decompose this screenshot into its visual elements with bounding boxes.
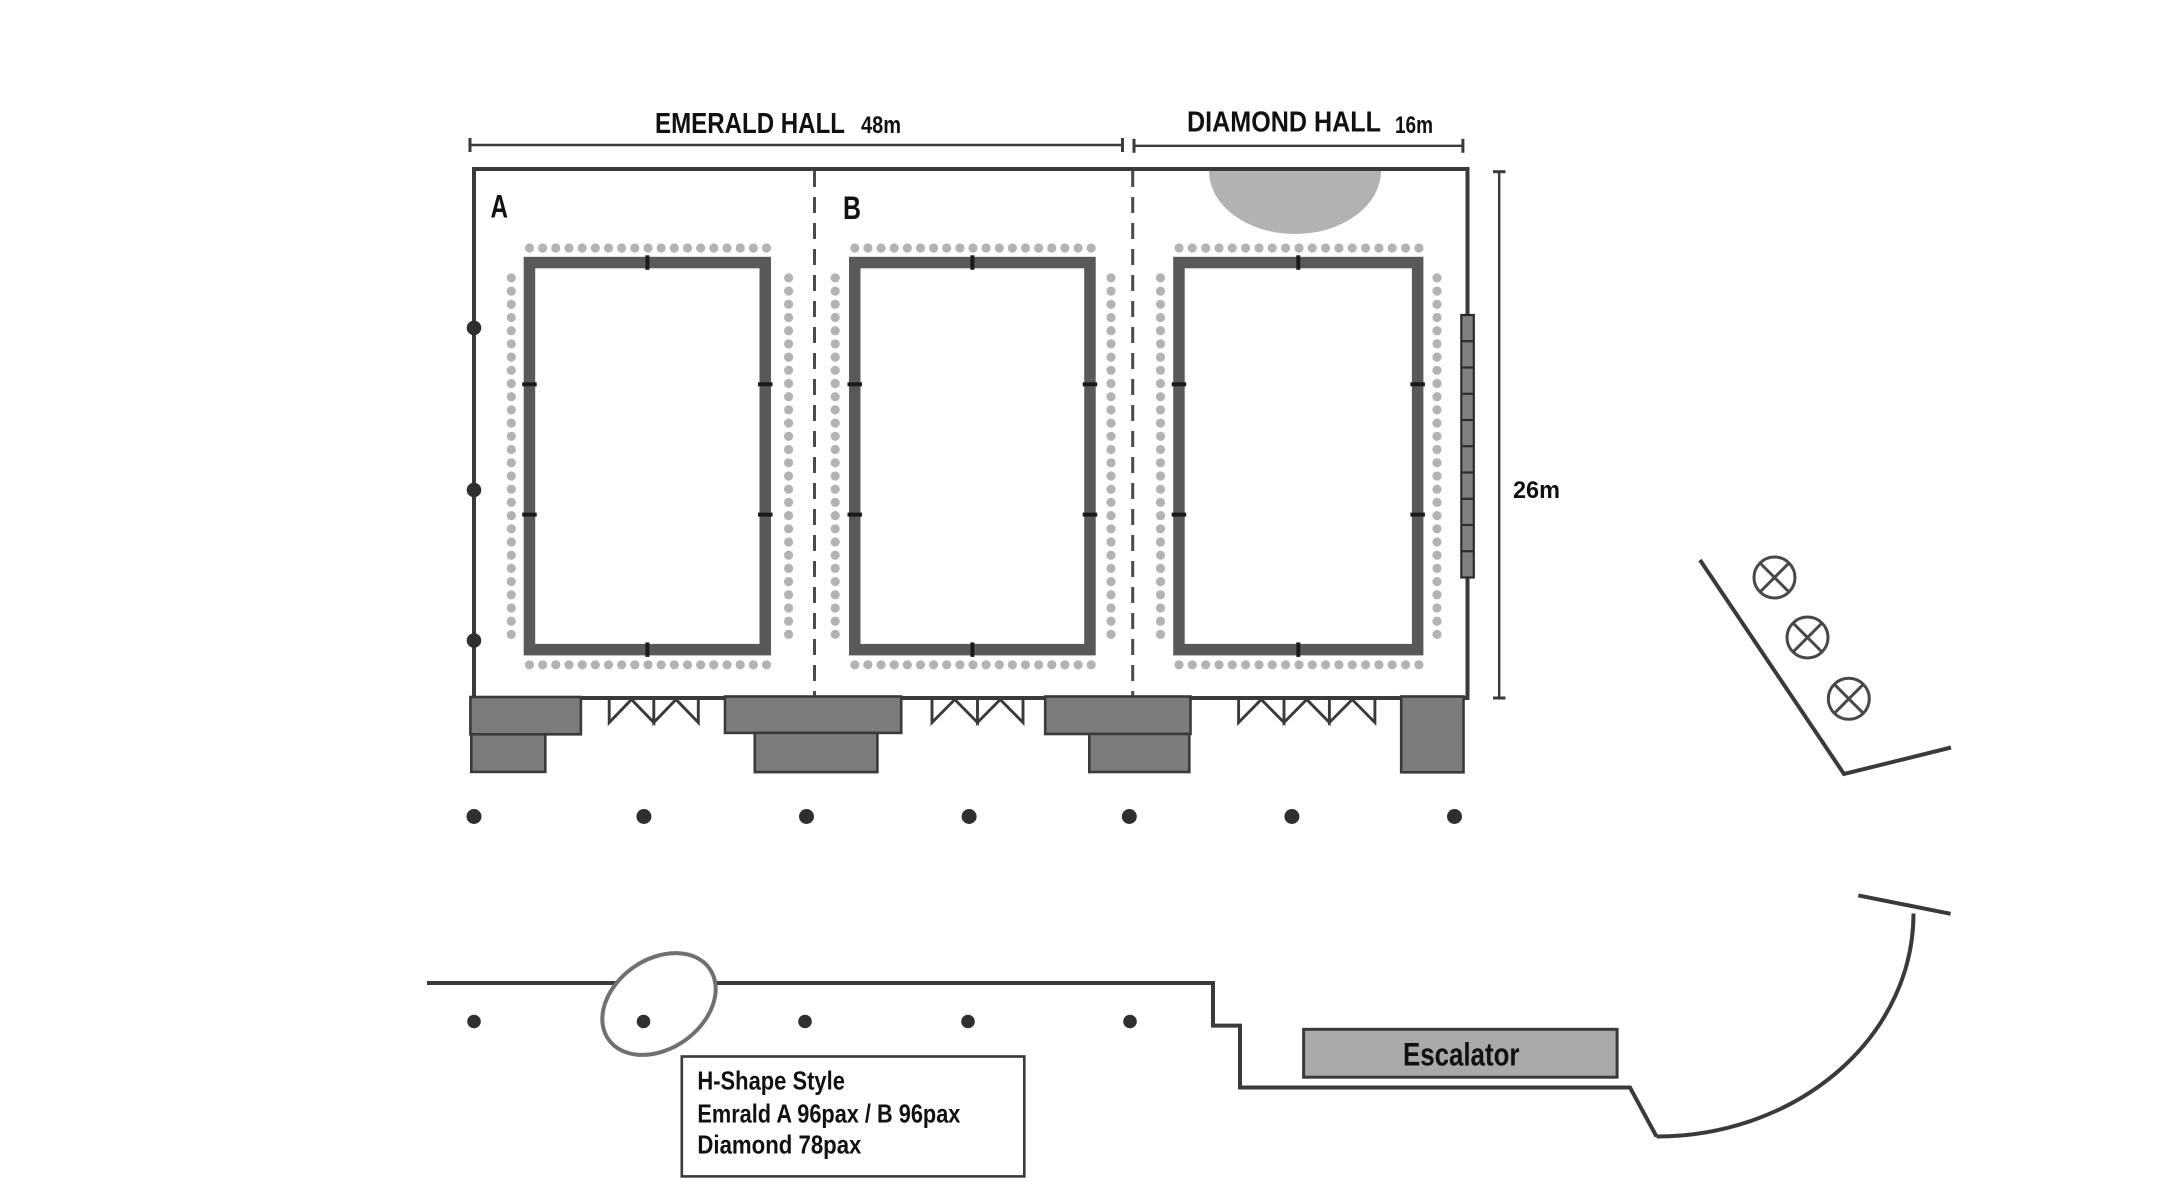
svg-text:B: B [843, 190, 861, 226]
svg-text:Emrald A 96pax / B 96pax: Emrald A 96pax / B 96pax [697, 1098, 960, 1128]
svg-text:A: A [491, 189, 509, 225]
svg-text:48m: 48m [861, 112, 901, 139]
svg-text:Diamond 78pax: Diamond 78pax [697, 1130, 861, 1160]
svg-text:16m: 16m [1395, 112, 1433, 139]
svg-text:H-Shape Style: H-Shape Style [697, 1066, 845, 1096]
svg-text:EMERALD HALL: EMERALD HALL [655, 108, 845, 140]
svg-text:DIAMOND HALL: DIAMOND HALL [1187, 107, 1381, 139]
svg-text:Escalator: Escalator [1403, 1037, 1520, 1073]
svg-text:26m: 26m [1513, 477, 1560, 504]
